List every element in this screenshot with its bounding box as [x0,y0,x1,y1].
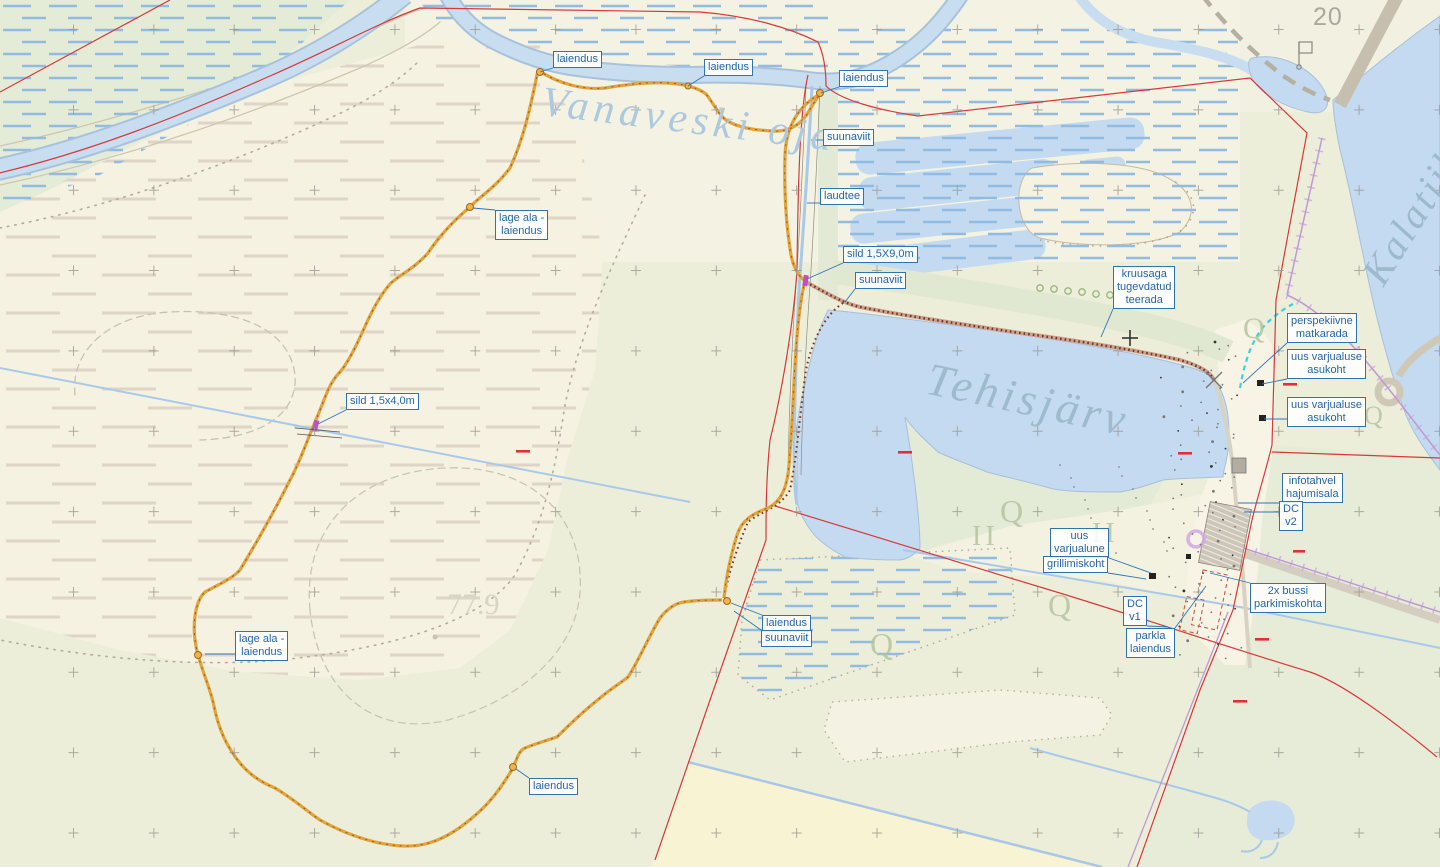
svg-text:Q: Q [1364,401,1383,430]
elevation-label: 77.9 [447,588,500,622]
svg-text:Q: Q [870,626,893,662]
svg-text:Q: Q [1048,587,1071,623]
svg-text:II: II [1092,518,1119,549]
map-viewport: Q Q Q Q Q II II Vanaveski oja Tehisjärv … [0,0,1440,867]
svg-text:Q: Q [1243,312,1265,345]
map-canvas: Q Q Q Q Q II II [0,0,1440,867]
svg-text:II: II [972,521,999,552]
svg-text:Q: Q [1000,493,1023,529]
map-sheet-number: 20 [1313,3,1343,32]
pond-bottom-right [1247,800,1295,840]
